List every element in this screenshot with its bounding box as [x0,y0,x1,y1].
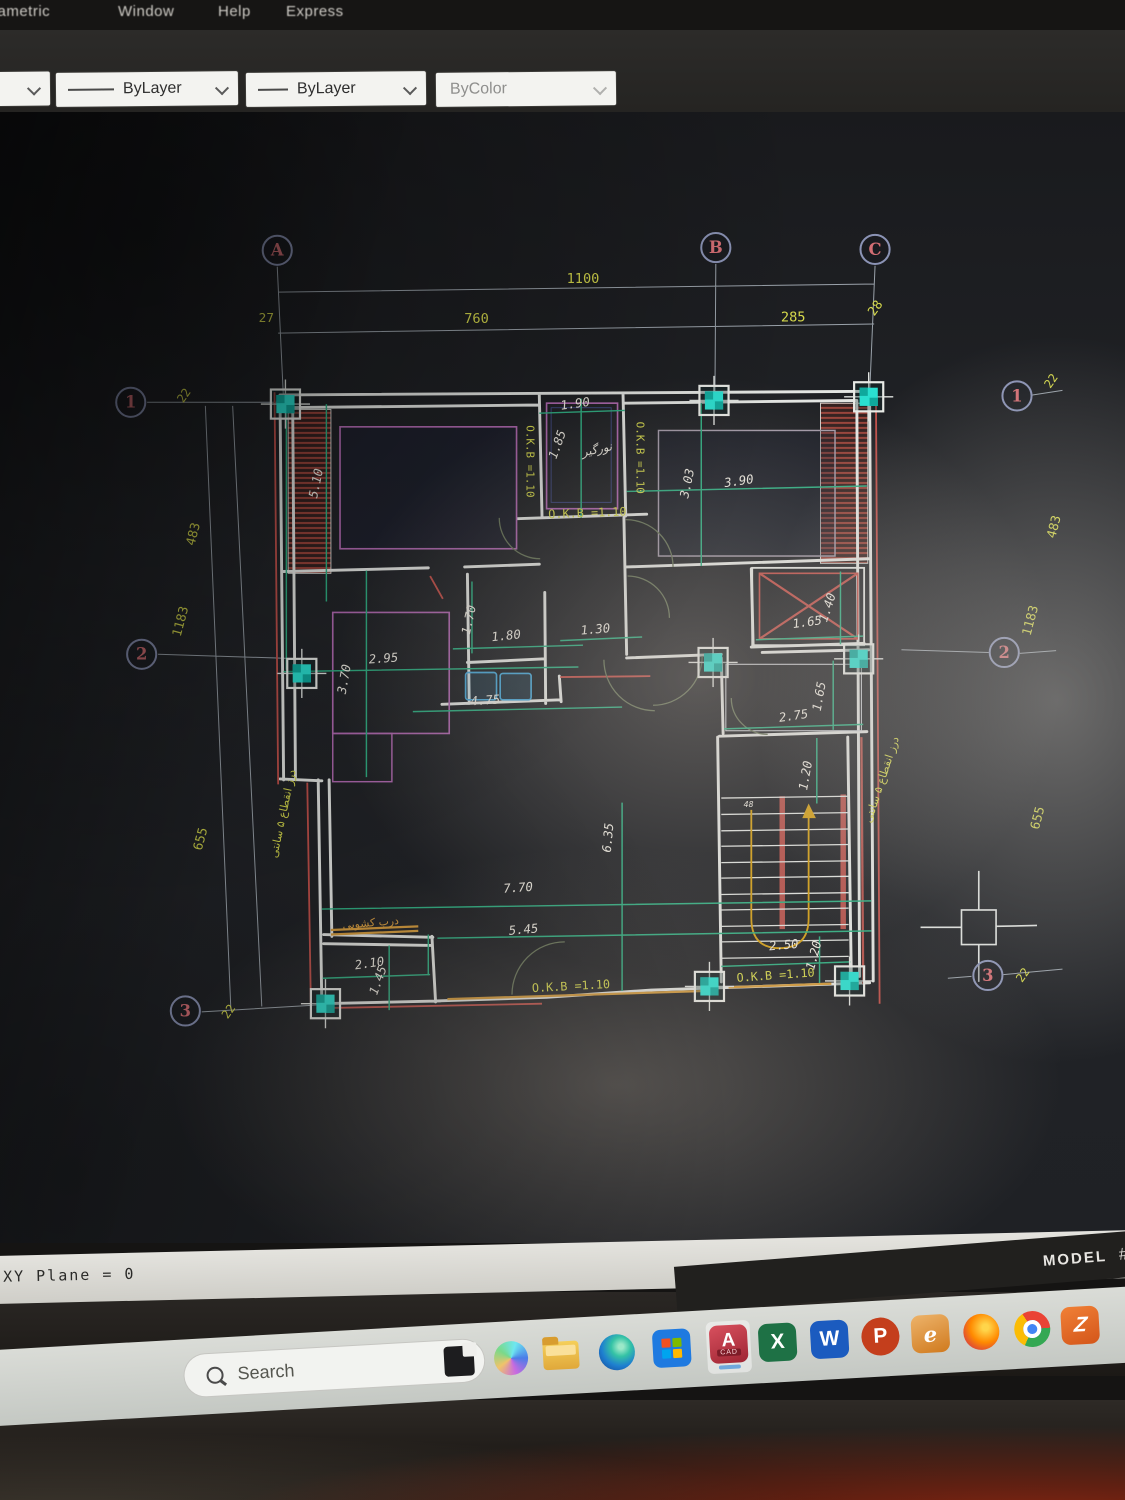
dimension-label: 483 [1044,514,1064,540]
elevator-shaft [752,568,864,645]
z-app-icon: Z [1073,1313,1088,1338]
dimension-label: 48 [744,799,754,809]
task-view-icon [443,1345,475,1377]
chevron-down-icon [27,82,41,96]
dimension-label: 1.80 [491,627,522,644]
svg-text:2: 2 [999,643,1010,662]
folder-icon [542,1340,580,1370]
dimension-label: درب کشویی [342,914,400,932]
file-explorer-button[interactable] [540,1334,582,1376]
menu-item-help[interactable]: Help [218,3,251,20]
task-view-button[interactable] [438,1340,480,1382]
grid-bubble: B [701,233,730,262]
plotstyle-dropdown[interactable]: ByColor [436,71,616,107]
copilot-icon [493,1340,529,1376]
line-swatch-icon [258,89,288,91]
autocad-icon: A CAD [709,1324,749,1364]
grid-bubble: 3 [973,961,1002,990]
autocad-drawing-canvas[interactable]: ABC123123 110076027285282248311836552222… [0,112,1125,1243]
stair-stringer [861,737,863,984]
powerpoint-button[interactable]: P [860,1317,900,1357]
dimension-label: 2.95 [368,650,398,666]
grid-bubble: 2 [127,640,156,669]
grid-bubble: 2 [990,638,1019,667]
dimension-label: 655 [191,826,211,852]
dimension-label: 1.70 [459,604,479,636]
grid-bubble: 1 [116,388,145,417]
column-marker [685,962,734,1011]
dimension-label: 22 [219,1002,239,1022]
dimension-label: 1.85 [546,428,569,461]
properties-toolbar: ByLayer ByLayer ByColor [0,30,1125,112]
menu-bar: rametric Window Help Express [0,0,1125,30]
dimension-label: 22 [1041,371,1061,391]
dimension-label: 1.65 [810,681,829,713]
running-indicator [719,1364,741,1369]
dimension-label: 22 [1013,965,1033,985]
menu-item-express[interactable]: Express [286,3,344,20]
store-icon [661,1338,682,1359]
search-placeholder: Search [237,1360,295,1384]
dimension-label: 6.35 [600,822,617,853]
eitaa-icon: e [923,1321,938,1347]
chrome-icon [1013,1310,1051,1348]
start-button[interactable] [129,1357,168,1396]
grid-bubble: 3 [171,996,200,1025]
dimension-label: 285 [781,309,806,325]
floor-plan: ABC123123 110076027285282248311836552222… [0,112,1125,1243]
dimension-label: درز انقطاع ۵ سانتی [267,768,298,859]
z-app-button[interactable]: Z [1060,1305,1100,1345]
chrome-button[interactable] [1011,1308,1053,1350]
grid-bubble: A [263,236,292,265]
layer-dropdown[interactable] [0,71,50,106]
grid-bubble: C [860,235,889,264]
column-marker [277,649,326,698]
svg-text:1: 1 [125,393,136,412]
search-icon [206,1366,224,1384]
svg-text:3: 3 [180,1001,191,1020]
word-button[interactable]: W [809,1319,849,1359]
column-marker [689,376,738,425]
room-insets [333,403,862,782]
dimension-label: 7.70 [503,880,533,896]
dimension-label: 3.70 [335,663,354,696]
chevron-down-icon [593,81,607,95]
dimension-label: O.K.B =1.10 [634,422,647,494]
dimension-label: 1183 [170,605,192,638]
dimension-label: 1.90 [560,395,591,413]
powerpoint-icon: P [873,1324,888,1349]
svg-text:C: C [869,240,882,259]
dimension-label: O.K.B =1.10 [524,425,537,497]
svg-text:1: 1 [1011,386,1022,405]
dimension-label: 28 [865,298,886,319]
command-text: XY Plane = 0 [3,1265,136,1286]
dimension-label: 655 [1028,805,1048,831]
excel-icon: X [770,1330,785,1355]
dropdown-value: ByColor [450,80,507,99]
dimension-label: 483 [184,521,204,547]
column-marker [825,956,874,1005]
excel-button[interactable]: X [758,1322,798,1362]
svg-text:A: A [270,241,284,260]
microsoft-store-button[interactable] [652,1328,692,1368]
dimension-label: 27 [259,311,274,326]
dimension-label: 1183 [1020,604,1042,637]
dimension-label: 1.20 [796,760,815,792]
edge-icon [598,1333,636,1371]
dimension-label: 4.75 [470,692,500,708]
dropdown-value: ByLayer [123,80,182,99]
dimension-label: 2.75 [778,707,809,725]
walk-line-arrow [802,804,816,819]
linetype-dropdown[interactable]: ByLayer [246,71,426,107]
menu-item-parametric[interactable]: rametric [0,3,50,20]
word-icon: W [819,1327,840,1352]
svg-text:B: B [709,238,723,257]
edge-button[interactable] [596,1331,638,1373]
svg-text:3: 3 [982,966,993,985]
column-marker [834,634,883,683]
model-tab[interactable]: MODEL [1042,1247,1107,1269]
chevron-down-icon [215,81,229,95]
eitaa-button[interactable]: e [910,1314,950,1354]
chevron-down-icon [403,81,417,95]
dimension-label: 5.45 [508,921,539,938]
column-marker [301,979,350,1028]
firefox-icon [962,1313,1000,1351]
monitor-photo: rametric Window Help Express ByLayer ByL… [0,0,1125,1500]
dimension-label: O.K.B =1.10 [736,965,815,984]
dimension-label: 1100 [567,271,600,287]
grid-lines [147,264,1062,1012]
dimension-label: 2.50 [768,937,799,954]
copilot-button[interactable] [490,1337,532,1379]
line-swatch-icon [68,88,114,90]
dimension-label: 1.30 [580,621,611,638]
grid-toggle-icon[interactable]: # [1118,1244,1125,1265]
dimension-label: درز انقطاع ۵ سانتی [862,735,902,825]
menu-item-window[interactable]: Window [118,3,174,20]
color-dropdown[interactable]: ByLayer [56,71,238,107]
dimension-label: 1.40 [816,591,838,623]
autocad-button[interactable]: A CAD [705,1320,752,1374]
firefox-button[interactable] [960,1311,1002,1353]
svg-text:2: 2 [136,645,147,664]
grid-bubble: 1 [1002,381,1031,410]
dimension-label: نورگیر [578,439,614,460]
door-swings [499,518,767,995]
dropdown-value: ByLayer [297,80,356,99]
dimension-label: O.K.B =1.10 [548,505,627,522]
dimension-label: 760 [464,311,489,327]
